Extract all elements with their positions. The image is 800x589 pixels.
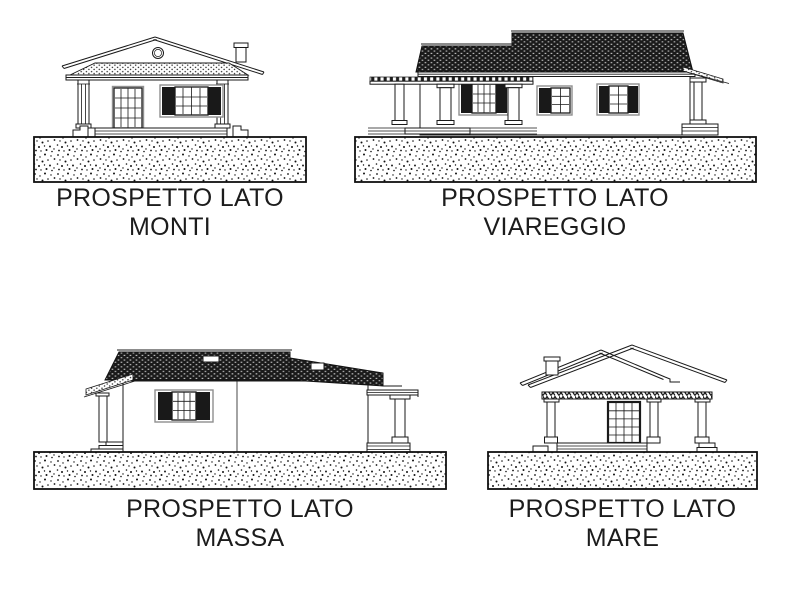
caption-mare-line2: MARE	[487, 524, 758, 553]
ground-band	[34, 452, 446, 489]
elevation-sheet: PROSPETTO LATO MONTI	[0, 0, 800, 589]
caption-massa: PROSPETTO LATO MASSA	[33, 495, 447, 553]
ground-band	[488, 452, 757, 489]
chimney	[234, 43, 248, 62]
caption-massa-line2: MASSA	[33, 524, 447, 553]
caption-mare-line1: PROSPETTO LATO	[487, 495, 758, 524]
caption-viareggio-line1: PROSPETTO LATO	[352, 184, 758, 213]
shuttered-window-1	[459, 82, 508, 115]
oculus-window	[153, 48, 164, 59]
elevation-drawing-monti	[33, 20, 307, 183]
tiled-roof-band	[70, 63, 248, 75]
ground-band	[355, 137, 756, 182]
caption-monti: PROSPETTO LATO MONTI	[33, 184, 307, 242]
porch-column-left	[91, 393, 123, 452]
pergola-right	[367, 390, 418, 452]
elevation-drawing-massa	[33, 345, 447, 490]
entry-steps	[533, 443, 717, 452]
caption-monti-line1: PROSPETTO LATO	[33, 184, 307, 213]
tiled-roof	[416, 31, 693, 72]
shuttered-window-3	[597, 84, 639, 115]
gridded-window	[608, 402, 640, 443]
roof-vent-2	[311, 363, 324, 370]
entry-steps	[73, 126, 248, 137]
elevation-drawing-viareggio	[352, 20, 758, 183]
cornice	[418, 72, 695, 77]
elevation-drawing-mare	[487, 340, 758, 490]
chimney	[544, 357, 560, 375]
ground-band	[34, 137, 306, 182]
cornice	[66, 75, 248, 80]
shuttered-window-2	[537, 86, 572, 115]
pilaster-left	[76, 80, 91, 128]
pergola-beam	[542, 392, 712, 399]
caption-viareggio: PROSPETTO LATO VIAREGGIO	[352, 184, 758, 242]
caption-massa-line1: PROSPETTO LATO	[33, 495, 447, 524]
shuttered-window	[160, 85, 223, 117]
caption-mare: PROSPETTO LATO MARE	[487, 495, 758, 553]
shuttered-window	[155, 390, 213, 422]
french-door	[113, 87, 144, 129]
caption-monti-line2: MONTI	[33, 213, 307, 242]
caption-viareggio-line2: VIAREGGIO	[352, 213, 758, 242]
roof-vent-1	[203, 356, 219, 362]
